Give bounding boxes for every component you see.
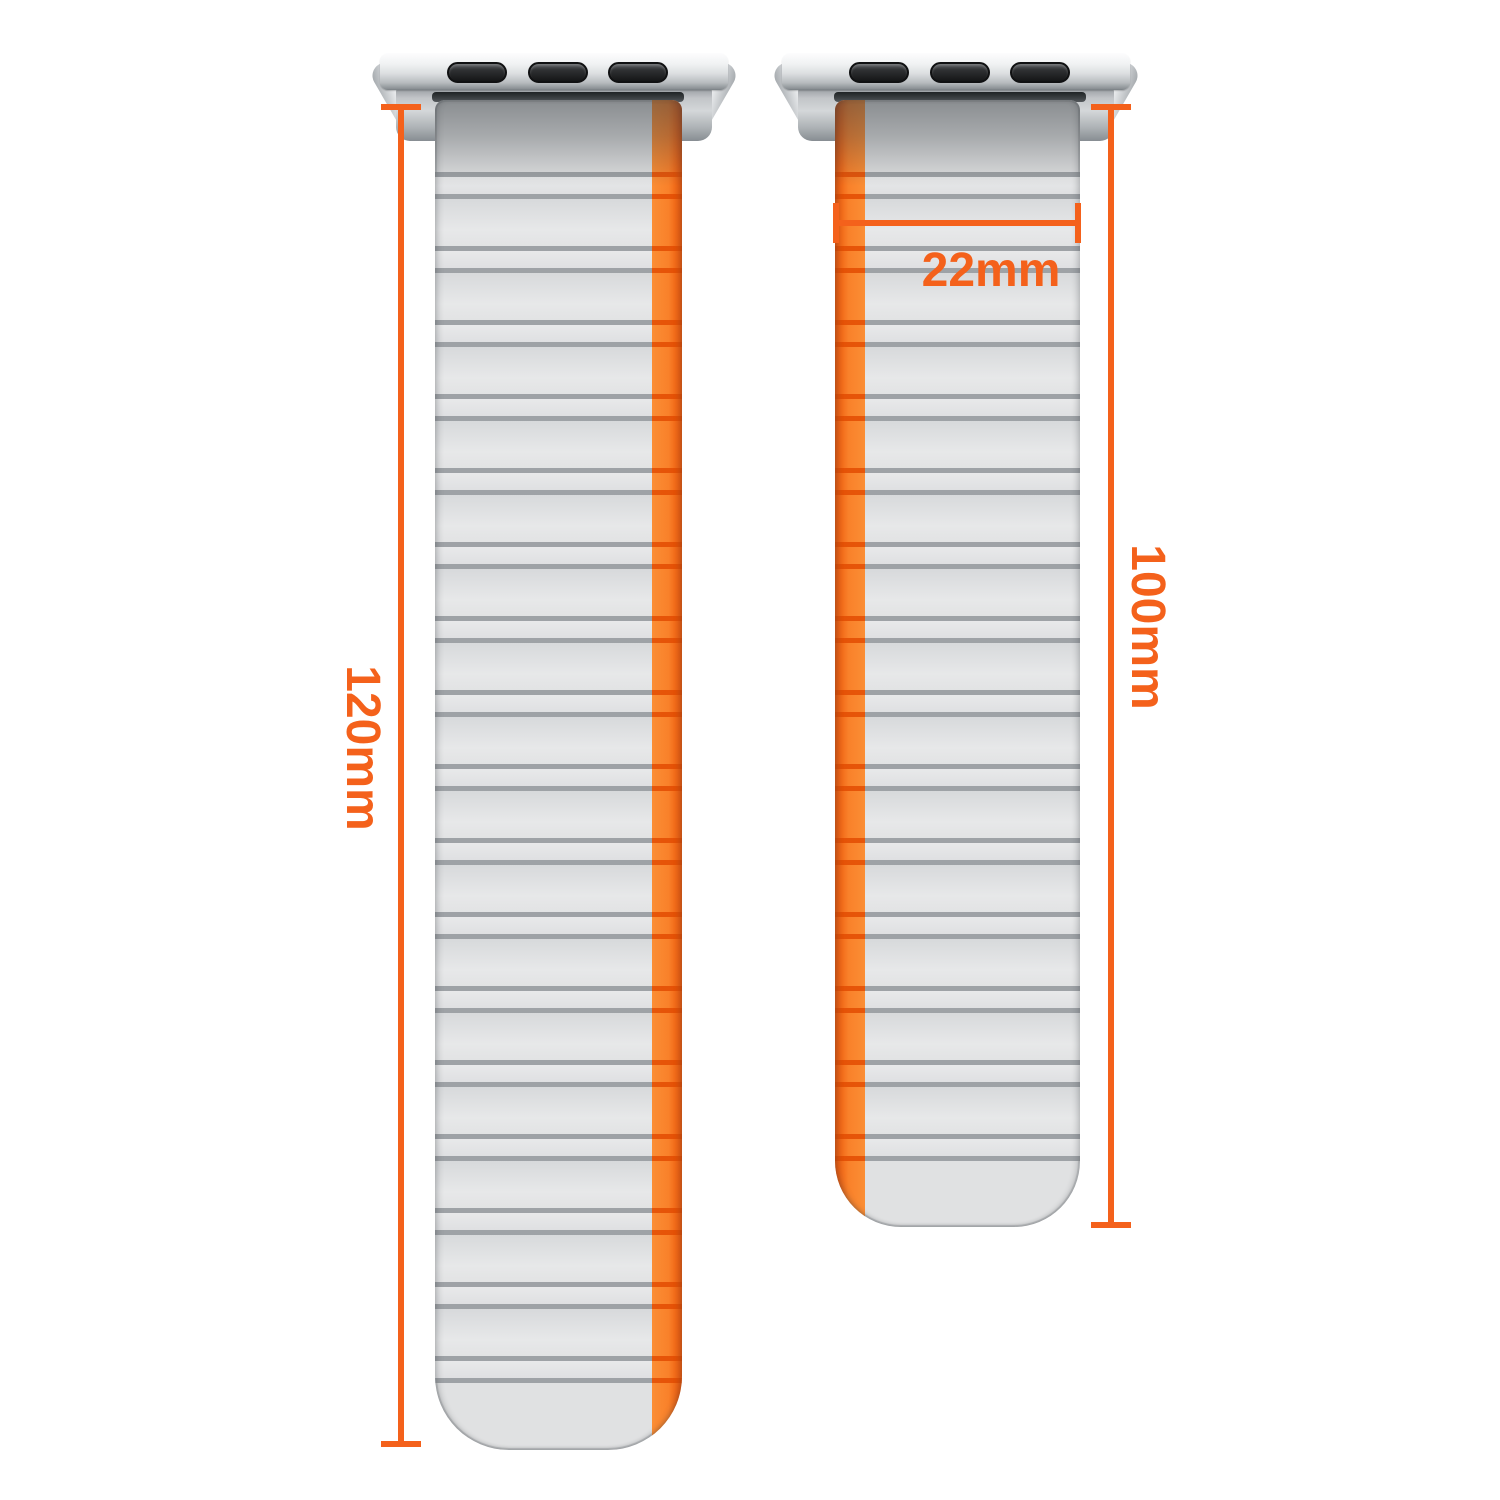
long-band-strap bbox=[435, 100, 682, 1450]
dimension-cap-bottom-100mm bbox=[1091, 1222, 1131, 1228]
dimension-cap-top-120mm bbox=[381, 104, 421, 110]
dimension-line-100mm bbox=[1108, 107, 1114, 1225]
dimension-line-22mm bbox=[836, 220, 1078, 226]
adapter-slot bbox=[447, 62, 507, 83]
dimension-cap-right-22mm bbox=[1075, 203, 1081, 243]
watch-band-dimension-diagram: 120mm 22mm 100mm bbox=[0, 0, 1500, 1500]
adapter-slot bbox=[849, 62, 909, 83]
dimension-cap-top-100mm bbox=[1091, 104, 1131, 110]
dimension-label-120mm: 120mm bbox=[338, 665, 386, 830]
adapter-slot bbox=[608, 62, 668, 83]
dimension-label-22mm: 22mm bbox=[922, 247, 1061, 295]
adapter-slot bbox=[528, 62, 588, 83]
strap-edge-shadow bbox=[435, 100, 682, 1450]
dimension-cap-left-22mm bbox=[833, 203, 839, 243]
adapter-slot bbox=[930, 62, 990, 83]
dimension-line-120mm bbox=[398, 107, 404, 1444]
dimension-cap-bottom-120mm bbox=[381, 1441, 421, 1447]
adapter-slot bbox=[1010, 62, 1070, 83]
dimension-label-100mm: 100mm bbox=[1123, 544, 1171, 709]
